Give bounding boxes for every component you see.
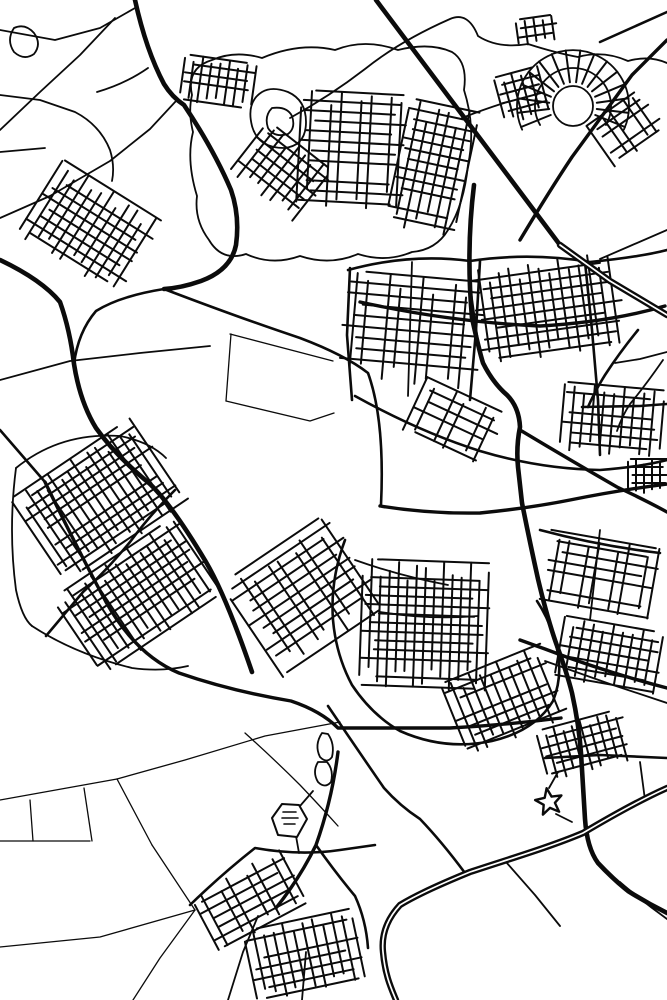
road [506,862,560,926]
motorway [383,788,667,1000]
road [152,845,195,910]
road [30,800,33,841]
map-poster [0,0,667,1000]
street-grid [515,14,558,45]
road [10,26,38,57]
road [0,8,135,40]
city-map-svg [0,0,667,1000]
fan-core [553,86,593,126]
fort-outline [272,804,307,837]
street-grid [494,66,550,124]
street-grid [229,121,334,223]
road [545,755,667,758]
road [0,18,115,130]
road [117,779,152,845]
street-grid [586,89,667,166]
road [0,101,176,218]
road [317,733,332,761]
road [315,762,332,786]
street-grid [17,159,163,296]
road [348,250,667,270]
road [190,845,375,905]
street-grid [559,382,665,458]
road [347,268,352,400]
road [408,262,412,396]
landmarks-layer [272,788,561,837]
road [640,762,645,800]
star-fort [535,788,561,814]
street-grid [243,908,366,1000]
road [133,910,195,1000]
road [0,148,45,152]
road [600,12,667,42]
road [117,722,340,779]
road [164,289,382,505]
road [230,334,333,361]
road [135,0,237,289]
road [250,89,306,148]
road [300,791,313,806]
road [0,779,117,800]
road [84,788,92,841]
road [615,352,667,363]
street-grid [468,251,628,366]
road [0,910,195,947]
road [556,814,572,822]
road [600,230,667,259]
road [226,334,231,401]
road [228,916,258,1000]
road [0,430,45,482]
road [296,836,299,853]
road [226,401,334,421]
road [0,346,210,380]
road [97,68,148,92]
road [549,772,558,788]
